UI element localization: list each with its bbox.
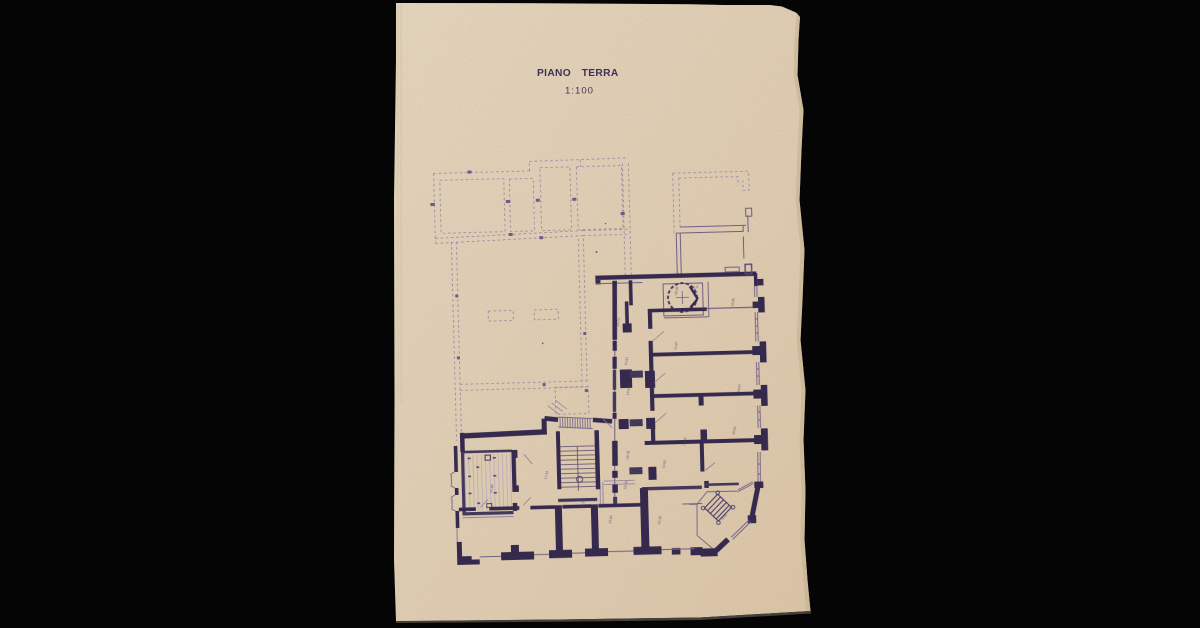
svg-text:PIANO TERRA: PIANO TERRA — [537, 68, 619, 79]
svg-text:1:100: 1:100 — [565, 86, 594, 97]
